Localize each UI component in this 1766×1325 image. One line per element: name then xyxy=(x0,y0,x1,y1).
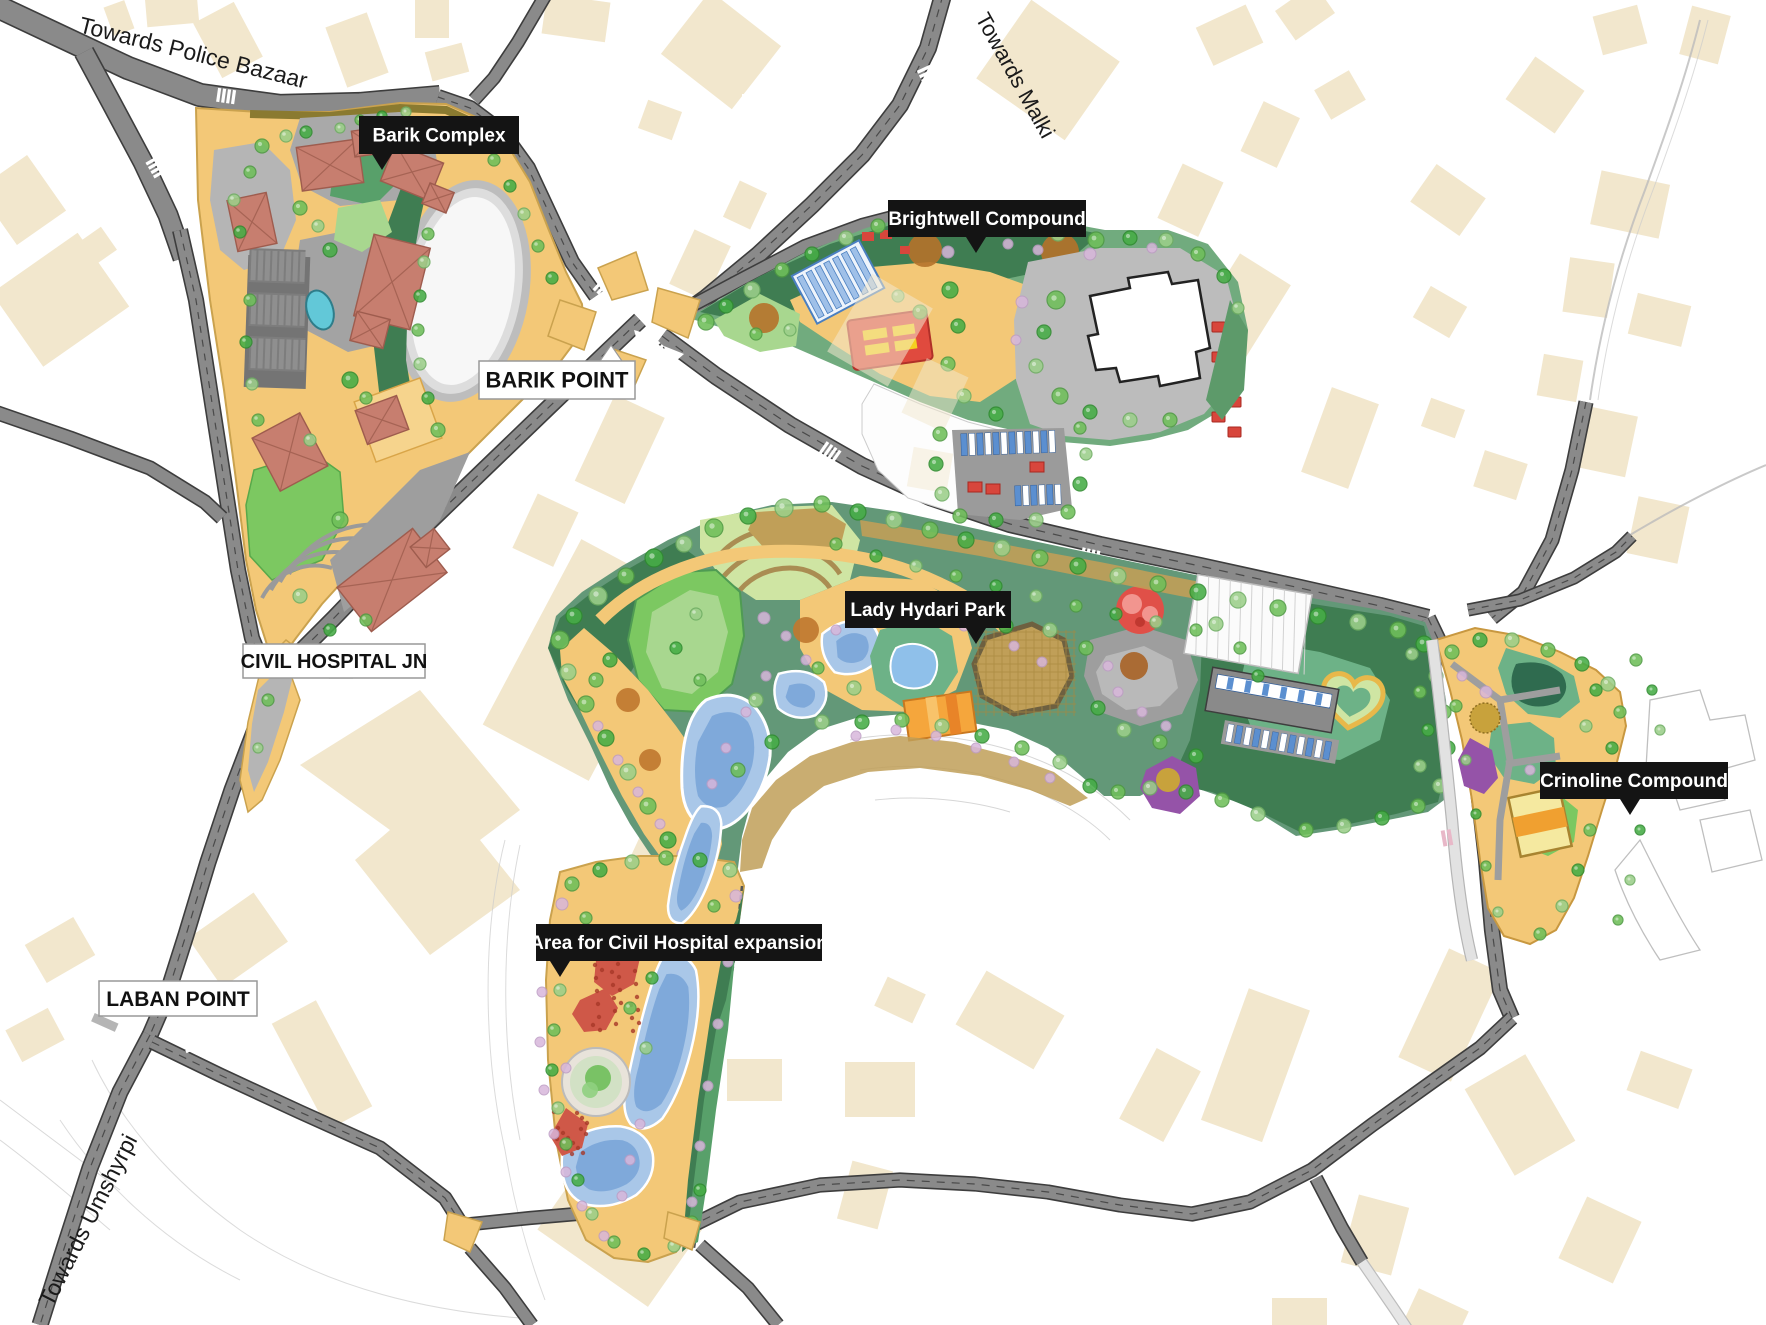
svg-text:Brightwell Compound: Brightwell Compound xyxy=(888,209,1085,230)
svg-text:BARIK POINT: BARIK POINT xyxy=(486,368,630,393)
svg-text:Barik Complex: Barik Complex xyxy=(372,126,505,147)
svg-text:LABAN POINT: LABAN POINT xyxy=(106,988,250,1011)
svg-text:Lady Hydari Park: Lady Hydari Park xyxy=(850,600,1006,621)
svg-text:Area for Civil Hospital expans: Area for Civil Hospital expansion xyxy=(530,933,828,954)
svg-text:Crinoline Compound: Crinoline Compound xyxy=(1540,771,1728,792)
svg-text:CIVIL HOSPITAL JN: CIVIL HOSPITAL JN xyxy=(241,651,428,673)
